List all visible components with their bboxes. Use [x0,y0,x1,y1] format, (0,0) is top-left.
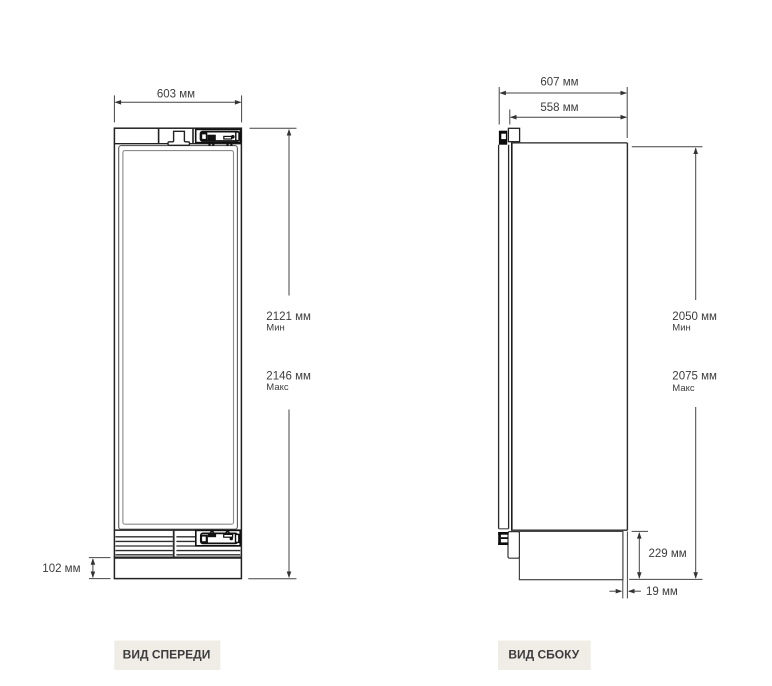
svg-text:Мин: Мин [266,323,284,334]
svg-text:Макс: Макс [672,383,695,394]
svg-text:ВИД СБОКУ: ВИД СБОКУ [508,648,579,662]
svg-text:19 мм: 19 мм [646,586,678,598]
svg-text:2121 мм: 2121 мм [266,311,311,323]
svg-text:ВИД СПЕРЕДИ: ВИД СПЕРЕДИ [123,648,211,662]
svg-text:603 мм: 603 мм [157,88,195,100]
svg-text:Макс: Макс [266,382,289,393]
svg-text:607 мм: 607 мм [540,76,578,88]
svg-text:102 мм: 102 мм [42,563,80,575]
svg-text:229 мм: 229 мм [649,548,687,560]
svg-text:2075 мм: 2075 мм [672,371,717,383]
svg-text:Мин: Мин [672,323,690,334]
svg-text:558 мм: 558 мм [540,102,578,114]
svg-text:2146 мм: 2146 мм [266,371,311,383]
svg-text:2050 мм: 2050 мм [672,311,717,323]
